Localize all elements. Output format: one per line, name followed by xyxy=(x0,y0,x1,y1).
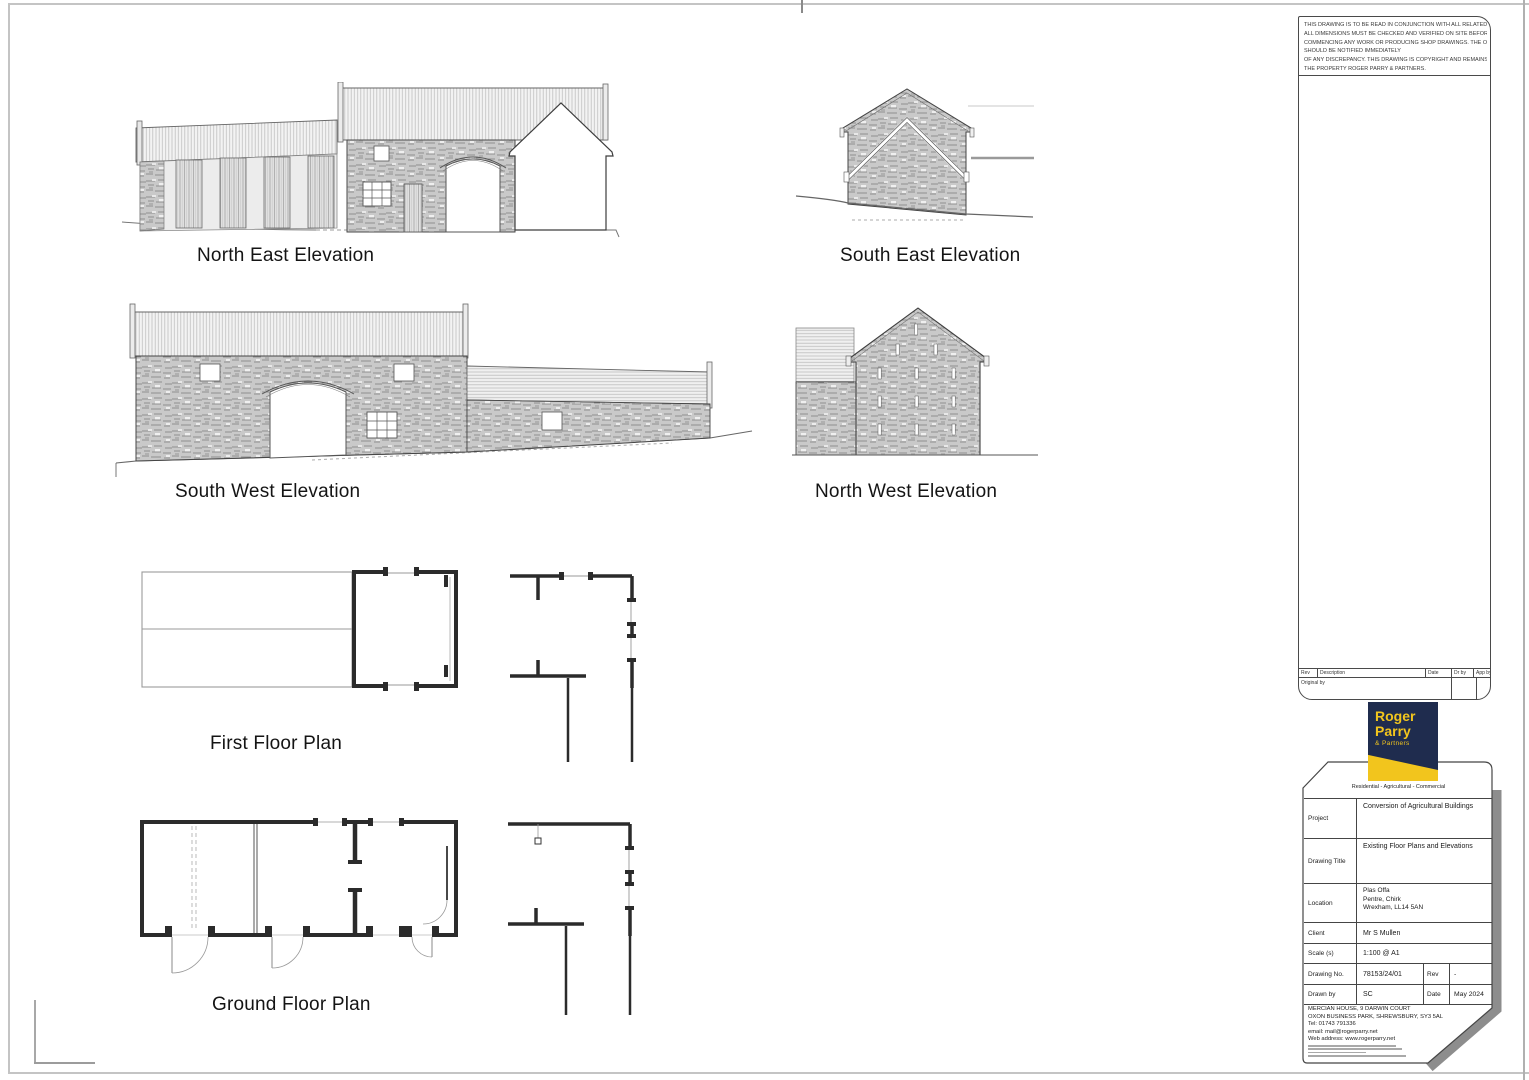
north-west-elevation-label: North West Elevation xyxy=(815,481,997,503)
revision-row: Original by xyxy=(1299,678,1490,699)
south-west-elevation-drawing xyxy=(112,300,767,482)
drawing-no-row: Drawing No. 78153/24/01 Rev - xyxy=(1304,964,1492,985)
note-line: THIS DRAWING IS TO BE READ IN CONJUNCTIO… xyxy=(1304,21,1487,30)
address-block: MERCIAN HOUSE, 9 DARWIN COURT OXON BUSIN… xyxy=(1308,1006,1468,1057)
title-block-table: Project Conversion of Agricultural Build… xyxy=(1304,798,1492,1005)
fine-print-line xyxy=(1308,1048,1402,1050)
address-line: email: mail@rogerparry.net xyxy=(1308,1029,1468,1037)
drawing-no-value: 78153/24/01 xyxy=(1357,964,1423,984)
address-line: Tel: 01743 791336 xyxy=(1308,1021,1468,1029)
original-by-cell: Original by xyxy=(1299,678,1451,699)
location-line: Plas Offa xyxy=(1363,887,1492,896)
location-label: Location xyxy=(1304,884,1357,922)
rev-label: Rev xyxy=(1423,964,1449,984)
south-east-elevation-label: South East Elevation xyxy=(840,245,1020,267)
north-east-elevation-label: North East Elevation xyxy=(197,245,374,267)
revision-table-header: Rev Description Date Dr by App by xyxy=(1299,668,1490,679)
sheet-border-bottom xyxy=(8,1072,1529,1074)
location-line: Pentre, Chirk xyxy=(1363,896,1492,905)
address-line: MERCIAN HOUSE, 9 DARWIN COURT xyxy=(1308,1006,1468,1014)
rev-col-header: Rev xyxy=(1299,669,1317,678)
notes-panel: THIS DRAWING IS TO BE READ IN CONJUNCTIO… xyxy=(1298,16,1491,700)
drawing-sheet: North East Elevation South East Elevatio… xyxy=(0,0,1529,1080)
ground-floor-plan-label: Ground Floor Plan xyxy=(212,994,371,1016)
location-value: Plas Offa Pentre, Chirk Wrexham, LL14 5A… xyxy=(1357,884,1492,922)
drawing-title-value: Existing Floor Plans and Elevations xyxy=(1357,839,1492,883)
location-row: Location Plas Offa Pentre, Chirk Wrexham… xyxy=(1304,884,1492,923)
sheet-border-right xyxy=(1523,0,1525,1080)
fine-print-line xyxy=(1308,1055,1406,1057)
client-value: Mr S Mullen xyxy=(1357,923,1492,943)
rev-value: - xyxy=(1449,964,1492,984)
north-east-elevation-drawing xyxy=(116,82,761,247)
corner-mark-vertical xyxy=(34,1000,36,1063)
note-line: COMMENCING ANY WORK OR PRODUCING SHOP DR… xyxy=(1304,39,1487,48)
note-line: ALL DIMENSIONS MUST BE CHECKED AND VERIF… xyxy=(1304,30,1487,39)
corner-mark-horizontal xyxy=(34,1062,95,1064)
sheet-fold-tick xyxy=(801,0,803,13)
barn-pane-window xyxy=(363,182,391,206)
plan-fragment xyxy=(508,824,630,936)
logo-word2: Parry xyxy=(1375,723,1411,739)
note-line: SHOULD BE NOTIFIED IMMEDIATELY xyxy=(1304,47,1487,56)
description-col-header: Description xyxy=(1317,669,1425,678)
general-notes: THIS DRAWING IS TO BE READ IN CONJUNCTIO… xyxy=(1299,17,1490,76)
first-floor-plan-label: First Floor Plan xyxy=(210,733,342,755)
client-row: Client Mr S Mullen xyxy=(1304,923,1492,944)
fine-print-line xyxy=(1308,1045,1396,1047)
note-line: THE PROPERTY ROGER PARRY & PARTNERS. xyxy=(1304,65,1487,74)
plan-fragment xyxy=(510,576,632,688)
scale-value: 1:100 @ A1 xyxy=(1357,944,1492,963)
fine-print-line xyxy=(1308,1052,1366,1054)
drawing-title-label: Drawing Title xyxy=(1304,839,1357,883)
note-line: OF ANY DISCREPANCY. THIS DRAWING IS COPY… xyxy=(1304,56,1487,65)
ground-floor-plan-drawing xyxy=(136,812,736,1017)
scale-label: Scale (s) xyxy=(1304,944,1357,963)
roger-parry-logo: Roger Parry & Partners xyxy=(1368,702,1438,781)
date-label: Date xyxy=(1423,985,1449,1004)
logo-word1: Roger xyxy=(1375,708,1415,724)
north-west-elevation-drawing xyxy=(788,300,1043,480)
revision-table: Rev Description Date Dr by App by Origin… xyxy=(1299,668,1490,700)
revision-row-cell xyxy=(1476,678,1490,699)
sheet-border-top xyxy=(8,3,1529,5)
drawn-by-value: SC xyxy=(1357,985,1423,1004)
drawn-by-label: Drawn by xyxy=(1304,985,1357,1004)
sheet-border-left xyxy=(8,3,10,1074)
project-row: Project Conversion of Agricultural Build… xyxy=(1304,799,1492,839)
drawing-title-row: Drawing Title Existing Floor Plans and E… xyxy=(1304,839,1492,884)
barn-pane-window xyxy=(367,412,397,438)
south-west-elevation-label: South West Elevation xyxy=(175,481,360,503)
logo-tagline: Residential - Agricultural - Commercial xyxy=(1336,784,1461,790)
drawn-by-row: Drawn by SC Date May 2024 xyxy=(1304,985,1492,1005)
drawing-no-label: Drawing No. xyxy=(1304,964,1357,984)
address-line: Web address: www.rogerparry.net xyxy=(1308,1036,1468,1044)
location-line: Wrexham, LL14 5AN xyxy=(1363,904,1492,913)
appby-col-header: App by xyxy=(1473,669,1490,678)
date-col-header: Date xyxy=(1425,669,1451,678)
revision-row-cell xyxy=(1451,678,1476,699)
drby-col-header: Dr by xyxy=(1451,669,1473,678)
scale-row: Scale (s) 1:100 @ A1 xyxy=(1304,944,1492,964)
south-east-elevation-drawing xyxy=(788,84,1038,244)
client-label: Client xyxy=(1304,923,1357,943)
project-label: Project xyxy=(1304,799,1357,838)
project-value: Conversion of Agricultural Buildings xyxy=(1357,799,1492,838)
logo-word3: & Partners xyxy=(1375,740,1410,747)
date-value: May 2024 xyxy=(1449,985,1492,1004)
address-line: OXON BUSINESS PARK, SHREWSBURY, SY3 5AL xyxy=(1308,1014,1468,1022)
